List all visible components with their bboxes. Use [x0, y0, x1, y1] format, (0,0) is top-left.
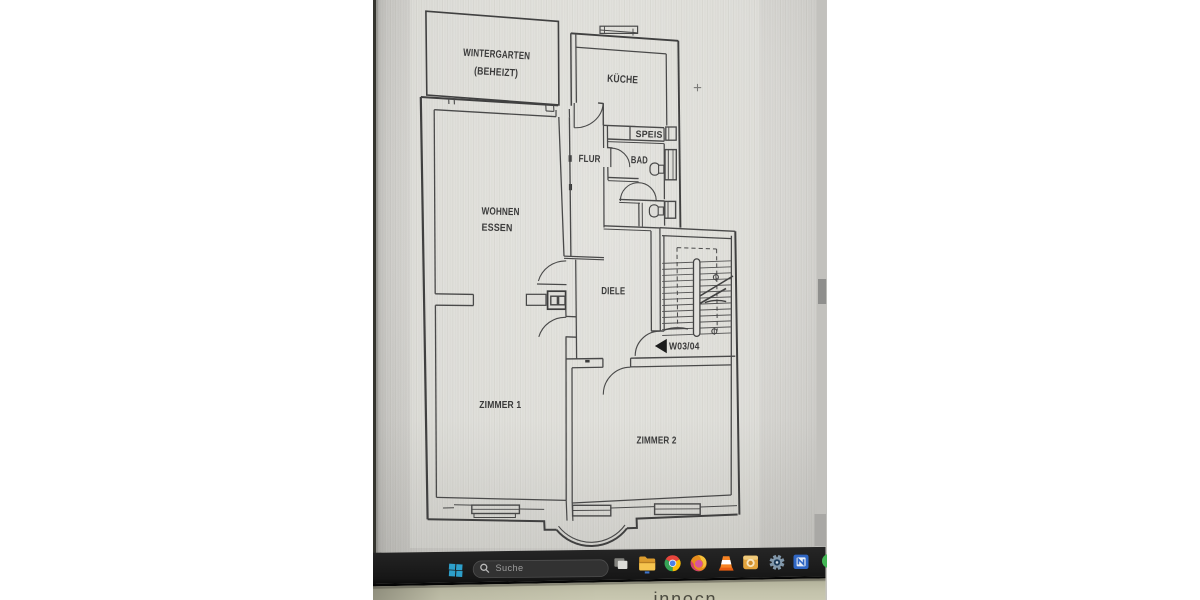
svg-text:BAD: BAD [631, 155, 648, 166]
svg-text:KÜCHE: KÜCHE [607, 72, 639, 87]
svg-text:DIELE: DIELE [601, 286, 625, 297]
svg-text:WOHNEN: WOHNEN [481, 206, 519, 218]
svg-text:innocn: innocn [654, 589, 718, 600]
svg-text:(BEHEIZT): (BEHEIZT) [474, 65, 519, 79]
svg-text:ESSEN: ESSEN [481, 223, 512, 235]
svg-text:Suche: Suche [496, 563, 524, 573]
svg-text:FLUR: FLUR [578, 154, 601, 166]
svg-text:ZIMMER 2: ZIMMER 2 [637, 435, 677, 446]
svg-text:ZIMMER 1: ZIMMER 1 [479, 400, 521, 411]
svg-text:SPEIS: SPEIS [635, 128, 662, 140]
svg-text:W03/04: W03/04 [669, 341, 700, 352]
